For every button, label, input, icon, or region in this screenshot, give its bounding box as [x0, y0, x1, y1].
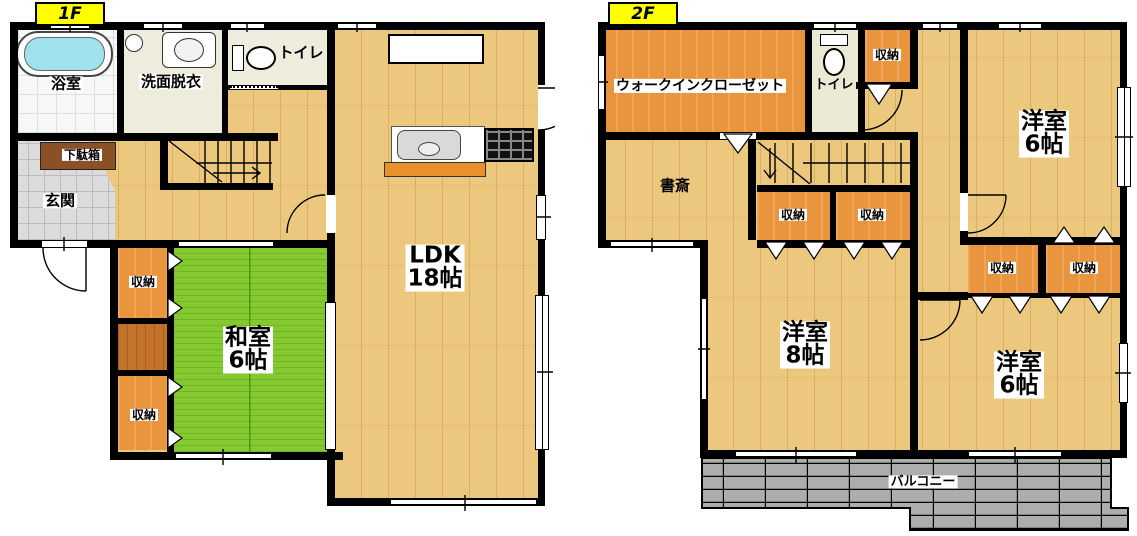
- wall: [757, 240, 918, 248]
- room-label-storage-1f-a: 収納: [129, 276, 157, 288]
- window: [922, 23, 958, 29]
- room-label-bath: 浴室: [49, 76, 83, 91]
- wall-stairs-2f: [757, 132, 918, 140]
- plan-2f: ウォークインクローゼット トイレ 収納 洋室 6帖 書斎 収納 収納 洋室 8帖…: [598, 22, 1137, 536]
- toilet-bowl-2f: [823, 48, 845, 76]
- wall: [748, 132, 756, 240]
- exterior-area: [10, 460, 327, 512]
- wall: [118, 318, 174, 324]
- sliding-partition-washitsu: [325, 302, 336, 450]
- floor-tag-1f: 1F: [35, 2, 105, 26]
- window-sliding-large: [1117, 87, 1131, 187]
- sliding-door-washitsu-top: [178, 241, 274, 247]
- toilet-tank-1f: [232, 45, 244, 71]
- washitsu-size: 6帖: [228, 348, 267, 374]
- bedroom-sw-name: 洋室: [782, 320, 828, 346]
- room-label-wic: ウォークインクローゼット: [614, 79, 786, 93]
- room-label-bedroom-se: 洋室 6帖: [994, 352, 1044, 399]
- room-label-storage-hall-b: 収納: [858, 209, 886, 221]
- wall: [910, 30, 918, 82]
- room-label-shoe-cabinet: 下駄箱: [62, 149, 102, 161]
- window: [175, 453, 272, 459]
- room-label-washroom: 洗面脱衣: [139, 74, 203, 89]
- wall: [830, 192, 836, 240]
- window: [598, 55, 605, 110]
- stove: [484, 128, 534, 162]
- window: [610, 241, 694, 247]
- wall: [910, 292, 968, 300]
- window: [998, 23, 1042, 29]
- window: [143, 23, 183, 29]
- toilet-bowl-1f: [246, 46, 276, 70]
- window: [230, 23, 265, 29]
- wall: [805, 22, 812, 140]
- wall: [1038, 245, 1046, 293]
- wall: [167, 240, 174, 452]
- kitchen-cupboard: [388, 34, 484, 64]
- door-gap-hall-ldk: [326, 195, 336, 233]
- room-label-storage-hall-a: 収納: [779, 209, 807, 221]
- bedroom-ne-size: 6帖: [1024, 132, 1063, 158]
- washing-machine-icon: [125, 34, 143, 52]
- door-gap-bedroom-ne: [960, 193, 968, 231]
- door-gap-wic: [720, 133, 756, 139]
- wall: [858, 22, 865, 135]
- wall: [222, 22, 228, 133]
- window-sliding-large: [535, 295, 549, 450]
- wall: [110, 240, 118, 460]
- balcony-door: [968, 451, 1062, 457]
- window: [1119, 343, 1128, 403]
- accordion-door-toilet-1f: [230, 86, 278, 89]
- floor-tag-2f: 2F: [608, 2, 678, 26]
- room-label-study: 書斎: [658, 178, 692, 193]
- ldk-name: LDK: [409, 243, 461, 269]
- room-label-storage-2f-top: 収納: [873, 49, 901, 61]
- washitsu-name: 和室: [225, 325, 271, 351]
- room-label-bedroom-sw: 洋室 8帖: [780, 322, 830, 369]
- floorplan-image: 浴室 洗面脱衣 トイレ 下駄箱 玄関 収納 収納 和室 6帖 LDK 18帖: [0, 0, 1137, 536]
- window: [813, 23, 857, 29]
- kitchen-counter: [384, 162, 486, 177]
- window: [390, 499, 537, 505]
- room-label-ldk: LDK 18帖: [405, 245, 464, 292]
- window: [701, 298, 707, 400]
- wall: [960, 237, 1126, 245]
- wall-stairs-2f: [757, 185, 918, 192]
- wall: [10, 133, 278, 141]
- wall: [117, 22, 124, 133]
- ldk-size: 18帖: [407, 266, 462, 292]
- wall-stairs-1f: [160, 183, 273, 190]
- room-label-storage-1f-b: 収納: [130, 409, 158, 421]
- room-label-balcony: バルコニー: [889, 475, 958, 488]
- balcony-door: [735, 451, 857, 457]
- bedroom-sw-size: 8帖: [785, 343, 824, 369]
- plan-1f: 浴室 洗面脱衣 トイレ 下駄箱 玄関 収納 収納 和室 6帖 LDK 18帖: [10, 22, 555, 512]
- washbasin-bowl: [174, 38, 204, 62]
- wall: [968, 293, 1120, 298]
- room-label-toilet-2f: トイレ: [812, 78, 855, 91]
- wall: [856, 82, 918, 89]
- room-label-toilet-1f: トイレ: [276, 45, 325, 60]
- bedroom-se-size: 6帖: [999, 373, 1038, 399]
- bedroom-se-name: 洋室: [996, 350, 1042, 376]
- room-label-entrance: 玄関: [43, 193, 77, 208]
- exterior-area: [598, 248, 700, 536]
- balcony-outline: [702, 458, 1128, 530]
- closet-1f: [118, 324, 167, 370]
- room-label-storage-se-a: 収納: [988, 262, 1016, 274]
- window: [337, 23, 377, 29]
- kitchen-faucet: [418, 142, 440, 156]
- window: [536, 195, 546, 240]
- room-label-storage-se-b: 収納: [1070, 262, 1098, 274]
- door-gap-entrance: [42, 241, 87, 247]
- wall: [327, 452, 335, 506]
- room-label-bedroom-ne: 洋室 6帖: [1019, 111, 1069, 158]
- wall: [118, 370, 174, 376]
- bedroom-ne-name: 洋室: [1021, 109, 1067, 135]
- toilet-tank-2f: [820, 34, 848, 46]
- room-label-washitsu: 和室 6帖: [223, 327, 273, 374]
- door-gap-ldk-right: [538, 85, 545, 130]
- bathtub-water: [24, 37, 105, 71]
